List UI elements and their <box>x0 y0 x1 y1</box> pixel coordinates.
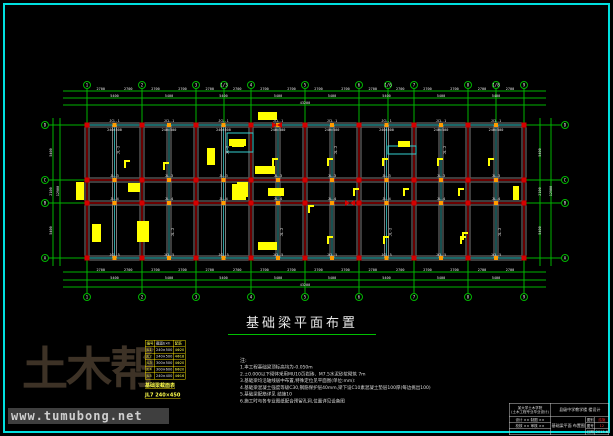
schedule-row: JL4300×6006Φ20 <box>145 366 185 373</box>
svg-text:2700: 2700 <box>178 87 186 91</box>
svg-text:JCL-1: JCL-1 <box>164 119 175 123</box>
svg-text:2700: 2700 <box>341 87 349 91</box>
svg-text:2700: 2700 <box>478 87 486 91</box>
svg-text:JL-2: JL-2 <box>443 146 447 154</box>
svg-text:2700: 2700 <box>423 87 431 91</box>
schedule-cell: 240×500 <box>155 353 174 360</box>
svg-text:240×500: 240×500 <box>379 128 394 132</box>
schedule-cell: 300×500 <box>155 360 174 367</box>
svg-text:JL-3: JL-3 <box>110 174 118 178</box>
section-marks <box>272 122 355 206</box>
svg-text:JL-3: JL-3 <box>274 174 282 178</box>
svg-text:5400: 5400 <box>538 226 542 234</box>
svg-text:2100: 2100 <box>538 187 542 195</box>
stair-opening-boxes <box>227 133 416 154</box>
svg-text:JL-4: JL-4 <box>219 197 227 201</box>
svg-text:2700: 2700 <box>450 268 458 272</box>
svg-text:2700: 2700 <box>314 268 322 272</box>
svg-text:2700: 2700 <box>206 268 214 272</box>
svg-text:2700: 2700 <box>233 87 241 91</box>
svg-text:2700: 2700 <box>287 87 295 91</box>
svg-text:JCL-1: JCL-1 <box>218 119 229 123</box>
svg-text:JL-2: JL-2 <box>171 228 175 236</box>
svg-text:5400: 5400 <box>110 276 118 280</box>
svg-text:5400: 5400 <box>274 276 282 280</box>
svg-text:12900: 12900 <box>549 186 553 197</box>
svg-text:240×500: 240×500 <box>271 128 286 132</box>
svg-text:12900: 12900 <box>56 186 60 197</box>
svg-text:5400: 5400 <box>382 276 390 280</box>
svg-text:JL-4: JL-4 <box>274 197 282 201</box>
schedule-cell: 4Φ20 <box>174 360 186 367</box>
svg-text:2100: 2100 <box>49 187 53 195</box>
svg-text:JL-2: JL-2 <box>334 146 338 154</box>
svg-text:JL-3: JL-3 <box>437 174 445 178</box>
svg-text:2700: 2700 <box>506 87 514 91</box>
svg-text:1/8: 1/8 <box>492 83 500 88</box>
svg-text:JL-4: JL-4 <box>437 197 445 201</box>
svg-text:JL-4: JL-4 <box>110 197 118 201</box>
watermark-logo: 土木帮 <box>22 344 154 395</box>
svg-text:240×500: 240×500 <box>434 128 449 132</box>
title-block-spare <box>509 429 551 435</box>
svg-text:1/6: 1/6 <box>384 83 392 88</box>
note-line: 5.基础梁配筋详见 结施10 <box>240 392 390 399</box>
svg-text:JCL-5: JCL-5 <box>436 253 447 257</box>
svg-text:JL-2: JL-2 <box>117 146 121 154</box>
svg-text:5400: 5400 <box>437 276 445 280</box>
svg-text:2700: 2700 <box>396 268 404 272</box>
notes-heading: 注: <box>240 356 390 364</box>
svg-text:JL-4: JL-4 <box>165 197 173 201</box>
svg-text:2700: 2700 <box>124 87 132 91</box>
svg-text:5400: 5400 <box>49 226 53 234</box>
svg-text:5400: 5400 <box>110 94 118 98</box>
schedule-row: JL2240×5004Φ18 <box>145 353 185 360</box>
schedule-row: 编号截面b×h配筋 <box>145 340 185 347</box>
svg-text:2700: 2700 <box>206 87 214 91</box>
svg-text:5400: 5400 <box>165 276 173 280</box>
svg-text:JL-4: JL-4 <box>328 197 336 201</box>
svg-text:2700: 2700 <box>396 87 404 91</box>
svg-text:240×500: 240×500 <box>489 128 504 132</box>
svg-text:JCL-5: JCL-5 <box>109 253 120 257</box>
svg-text:5400: 5400 <box>492 94 500 98</box>
schedule-cell: 240×400 <box>155 373 174 380</box>
svg-text:JCL-1: JCL-1 <box>381 119 392 123</box>
svg-text:2700: 2700 <box>97 268 105 272</box>
svg-text:2700: 2700 <box>178 268 186 272</box>
svg-text:JL-3: JL-3 <box>492 174 500 178</box>
svg-text:2700: 2700 <box>314 87 322 91</box>
note-line: 3.基础梁均沿轴线居中布置,特殊定位见平面图(单位:mm): <box>240 378 390 385</box>
svg-text:JCL-1: JCL-1 <box>273 119 284 123</box>
svg-text:JCL-5: JCL-5 <box>164 253 175 257</box>
note-line: 6.施工时与各专业图纸配合预留孔洞,位置详见设备图 <box>240 398 390 405</box>
svg-text:5400: 5400 <box>382 94 390 98</box>
schedule-cell: 4Φ20 <box>174 347 186 354</box>
svg-text:JL-3: JL-3 <box>328 174 336 178</box>
svg-text:2700: 2700 <box>151 268 159 272</box>
watermark-url: www.tumubong.net <box>8 408 169 424</box>
schedule-row: JL3300×5004Φ20 <box>145 360 185 367</box>
svg-text:240×500: 240×500 <box>162 128 177 132</box>
title-block: 某大学土木学院 (土木工程专业毕业设计) 县级中学教学楼 楼设计 设计 ×× 制… <box>509 403 609 435</box>
schedule-cell: 编号 <box>145 340 155 347</box>
svg-text:JCL-5: JCL-5 <box>273 253 284 257</box>
svg-text:5400: 5400 <box>219 276 227 280</box>
schedule-footer-1: 基础梁截面表 <box>145 381 175 389</box>
svg-text:2700: 2700 <box>369 87 377 91</box>
schedule-footer-2: JL7 240×450 <box>145 393 180 399</box>
schedule-cell: 4Φ16 <box>174 373 186 380</box>
svg-text:2700: 2700 <box>260 87 268 91</box>
svg-text:JCL-5: JCL-5 <box>327 253 338 257</box>
svg-text:5400: 5400 <box>328 94 336 98</box>
svg-text:2700: 2700 <box>341 268 349 272</box>
svg-text:JL-2: JL-2 <box>226 146 230 154</box>
svg-text:JL-2: JL-2 <box>389 228 393 236</box>
schedule-cell: 4Φ18 <box>174 353 186 360</box>
note-line: 2.±0.000以下砌体采用MU10页岩砖、M7.5水泥砂浆砌筑 7m <box>240 371 390 378</box>
schedule-row: JL1240×5004Φ20 <box>145 347 185 354</box>
svg-text:2700: 2700 <box>233 268 241 272</box>
svg-text:43200: 43200 <box>300 283 311 287</box>
svg-text:2700: 2700 <box>151 87 159 91</box>
svg-text:JCL-1: JCL-1 <box>109 119 120 123</box>
svg-text:2700: 2700 <box>287 268 295 272</box>
svg-text:JCL-1: JCL-1 <box>436 119 447 123</box>
beam-schedule-table: 编号截面b×h配筋JL1240×5004Φ20JL2240×5004Φ18JL3… <box>145 340 186 399</box>
title-block-drawing-name: 基础梁平面 布置图 <box>551 417 586 435</box>
svg-text:2700: 2700 <box>423 268 431 272</box>
note-line: 1.本工程基础梁顶标高均为-0.050m <box>240 365 390 372</box>
svg-text:240×500: 240×500 <box>107 128 122 132</box>
svg-text:2700: 2700 <box>260 268 268 272</box>
svg-text:43200: 43200 <box>300 101 311 105</box>
svg-text:240×500: 240×500 <box>325 128 340 132</box>
svg-text:2700: 2700 <box>450 87 458 91</box>
svg-text:JL-2: JL-2 <box>280 228 284 236</box>
svg-text:5400: 5400 <box>219 94 227 98</box>
svg-text:2700: 2700 <box>124 268 132 272</box>
svg-text:JL-3: JL-3 <box>165 174 173 178</box>
schedule-cell: 240×500 <box>155 347 174 354</box>
schedule-cell: JL5 <box>145 373 155 380</box>
title-block-org: 某大学土木学院 (土木工程专业毕业设计) <box>509 403 551 417</box>
svg-text:JL-3: JL-3 <box>382 174 390 178</box>
schedule-cell: 300×600 <box>155 366 174 373</box>
svg-text:5400: 5400 <box>328 276 336 280</box>
svg-text:240×500: 240×500 <box>216 128 231 132</box>
general-notes: 注: 1.本工程基础梁顶标高均为-0.050m2.±0.000以下砌体采用MU1… <box>240 356 390 405</box>
svg-text:2700: 2700 <box>478 268 486 272</box>
svg-text:JCL-1: JCL-1 <box>491 119 502 123</box>
svg-text:JL-4: JL-4 <box>382 197 390 201</box>
drawing-title: 基础梁平面布置 <box>228 312 376 335</box>
cad-drawing-sheet: 2700270027002700270027002700270027002700… <box>0 0 613 436</box>
svg-text:JL-3: JL-3 <box>219 174 227 178</box>
field-label: 日期 <box>586 429 595 435</box>
svg-text:2700: 2700 <box>369 268 377 272</box>
title-block-project: 县级中学教学楼 楼设计 <box>551 403 609 417</box>
svg-text:2700: 2700 <box>506 268 514 272</box>
svg-text:5400: 5400 <box>492 276 500 280</box>
svg-text:JCL-1: JCL-1 <box>327 119 338 123</box>
svg-text:5400: 5400 <box>538 148 542 156</box>
svg-text:JCL-5: JCL-5 <box>491 253 502 257</box>
field-value: 2013.6 <box>595 429 609 435</box>
svg-text:5400: 5400 <box>49 148 53 156</box>
schedule-row: JL5240×4004Φ16 <box>145 373 185 380</box>
svg-text:JL-2: JL-2 <box>498 228 502 236</box>
note-line: 4.基础梁混凝土强度等级C30,钢筋保护层40mm,梁下设C10素混凝土垫层10… <box>240 385 390 392</box>
svg-text:5400: 5400 <box>437 94 445 98</box>
svg-text:2700: 2700 <box>97 87 105 91</box>
svg-text:JL-4: JL-4 <box>492 197 500 201</box>
schedule-cell: 6Φ20 <box>174 366 186 373</box>
svg-text:5400: 5400 <box>165 94 173 98</box>
svg-text:1/3: 1/3 <box>220 83 228 88</box>
dimension-texts: 2700270027002700270027002700270027002700… <box>49 87 553 287</box>
svg-text:5400: 5400 <box>274 94 282 98</box>
svg-text:JCL-5: JCL-5 <box>218 253 229 257</box>
svg-text:JCL-5: JCL-5 <box>381 253 392 257</box>
